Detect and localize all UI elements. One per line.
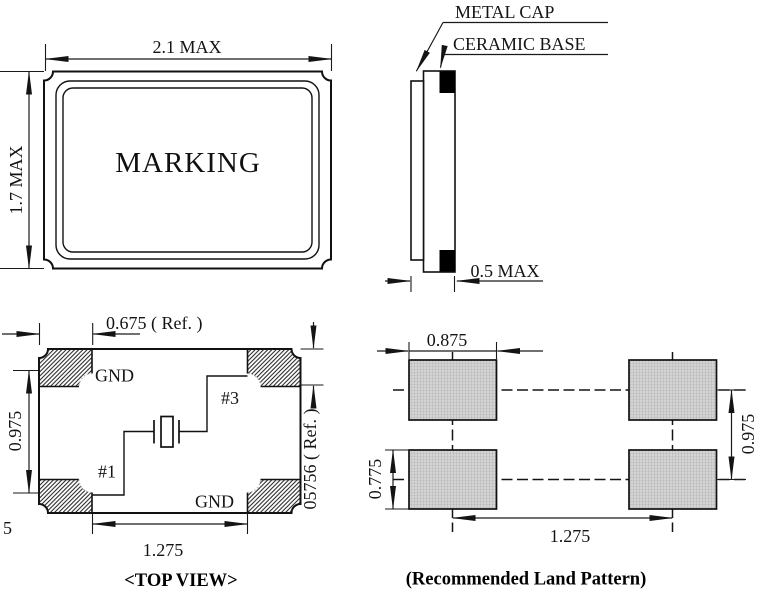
stray-digit: 5: [3, 518, 12, 538]
dim-pad-width: 0.675 ( Ref. ): [2, 313, 202, 345]
metal-cap-label: METAL CAP: [455, 2, 554, 22]
land-pad-bottom-right: [629, 450, 717, 509]
land-pad-bottom-left: [409, 450, 497, 509]
ceramic-base: [424, 71, 456, 272]
dim-vertical-pitch-label: 0.975: [5, 411, 25, 452]
dim-land-vertical-pitch: 0.975: [717, 390, 759, 480]
dim-height-label: 1.7 MAX: [6, 145, 26, 214]
dim-land-horizontal-pitch: 1.275: [453, 518, 672, 546]
dim-land-pad-height-label: 0.775: [365, 459, 385, 500]
dim-horizontal-pitch: 1.275: [93, 513, 248, 560]
pad-label-gnd-top: GND: [95, 366, 134, 386]
top-view-caption: <TOP VIEW>: [124, 571, 237, 591]
land-pattern: 0.875 0.775 0.975 1.275 (Recommended Lan…: [365, 330, 758, 590]
dim-land-pad-width-label: 0.875: [427, 330, 468, 350]
pad-label-gnd-bottom: GND: [195, 492, 234, 512]
technical-drawing-page: MARKING 2.1 MAX 1.7 MAX METAL CAP CERAMI…: [0, 0, 763, 594]
electrode-bottom: [440, 250, 456, 272]
ceramic-base-callout: CERAMIC BASE: [441, 34, 609, 68]
dim-thickness: 0.5 MAX: [385, 261, 543, 292]
front-view: MARKING 2.1 MAX 1.7 MAX: [0, 37, 332, 269]
pad-label-1: #1: [98, 462, 116, 482]
land-pad-top-left: [409, 360, 497, 420]
dim-pad-height-label: 05756 ( Ref. ): [300, 409, 321, 510]
dim-width-label: 2.1 MAX: [152, 37, 221, 57]
dim-width: 2.1 MAX: [46, 37, 332, 71]
side-view: METAL CAP CERAMIC BASE 0.5 MAX: [385, 2, 608, 292]
dim-thickness-label: 0.5 MAX: [470, 261, 539, 281]
drawing-canvas: MARKING 2.1 MAX 1.7 MAX METAL CAP CERAMI…: [0, 0, 763, 594]
land-pad-top-right: [629, 360, 717, 420]
top-view: GND #3 #1 GND 0.675 ( Ref. ) 0.975 1.275: [2, 313, 324, 591]
electrode-top: [440, 72, 456, 94]
metal-cap: [411, 81, 424, 260]
ceramic-base-label: CERAMIC BASE: [453, 34, 586, 54]
dim-vertical-pitch: 0.975: [5, 371, 38, 494]
dim-height: 1.7 MAX: [0, 72, 44, 269]
marking-text: MARKING: [115, 147, 261, 179]
dim-horizontal-pitch-label: 1.275: [143, 540, 184, 560]
pad-label-3: #3: [221, 388, 239, 408]
land-pattern-caption: (Recommended Land Pattern): [406, 570, 646, 590]
dim-pad-width-label: 0.675 ( Ref. ): [106, 313, 202, 334]
dim-land-vertical-pitch-label: 0.975: [738, 414, 758, 455]
dim-land-horizontal-pitch-label: 1.275: [550, 526, 591, 546]
dim-land-pad-width: 0.875: [377, 330, 543, 359]
dim-pad-height: 05756 ( Ref. ): [300, 322, 324, 509]
